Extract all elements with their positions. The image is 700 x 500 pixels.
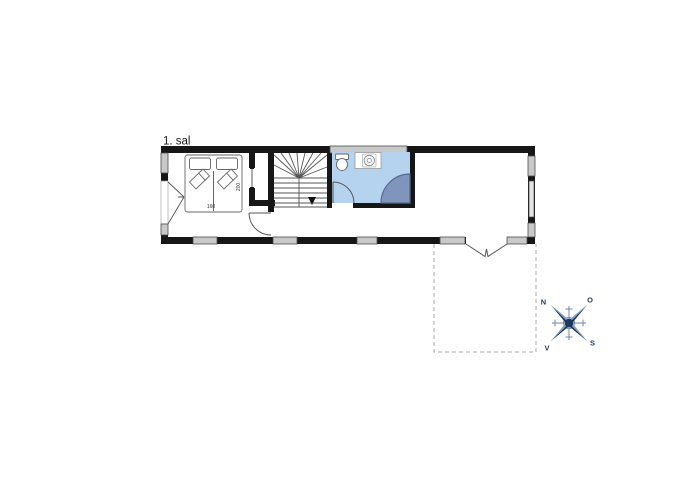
toilet xyxy=(336,154,349,171)
compass-label-west: V xyxy=(544,344,549,353)
bed-pillow-left xyxy=(190,158,211,170)
sink-drain xyxy=(367,158,371,162)
window-right-mid xyxy=(529,181,534,217)
french-doors xyxy=(466,244,507,257)
window-bottom-2 xyxy=(273,237,297,244)
bedroom-door-swing xyxy=(249,213,271,235)
window-bottom-3 xyxy=(357,237,377,244)
bed-pillow-right xyxy=(217,158,238,170)
bathroom-wall-left xyxy=(327,152,332,208)
window-right-2 xyxy=(528,223,535,237)
compass-center xyxy=(565,319,574,328)
window-top-bathroom xyxy=(330,146,407,153)
floor-label: 1. sal xyxy=(163,136,191,148)
bed-width-dimension: 160 xyxy=(207,204,216,210)
bed-length-dimension: 200 xyxy=(236,183,242,192)
window-left-opening xyxy=(161,181,168,224)
window-bottom-5 xyxy=(507,237,527,244)
door-jamb-bottom xyxy=(250,187,254,190)
compass-label-east: O xyxy=(587,296,593,305)
window-left-2 xyxy=(161,224,168,235)
compass-label-south: S xyxy=(590,339,595,348)
stair-down-arrow-icon xyxy=(308,197,316,205)
toilet-bowl xyxy=(337,159,348,171)
bedroom-partition-upper xyxy=(249,153,255,168)
stair-winders xyxy=(274,153,327,178)
bedroom-door xyxy=(249,213,271,235)
bathroom-wall-right xyxy=(410,152,415,208)
stair-wall xyxy=(268,153,274,212)
floor-plan-canvas: 1. sal xyxy=(0,0,700,500)
bathroom xyxy=(332,152,410,203)
door-jamb-top xyxy=(250,167,254,170)
window-bottom-1 xyxy=(193,237,217,244)
window-left-1 xyxy=(161,153,168,173)
compass-label-north: N xyxy=(541,298,546,307)
terrace-outline xyxy=(434,244,536,352)
window-bottom-4 xyxy=(440,237,465,244)
bedroom-sliding-door xyxy=(250,167,254,190)
double-bed: 160 200 xyxy=(185,155,242,212)
stair-treads xyxy=(274,183,327,203)
sink xyxy=(355,153,381,169)
window-right-1 xyxy=(528,156,535,176)
staircase xyxy=(274,153,327,207)
floor-plan: 1. sal xyxy=(0,0,700,500)
casement-window-swing xyxy=(168,182,184,224)
bathroom-wall-bottom xyxy=(353,203,415,208)
compass-rose-icon: N O S V xyxy=(541,296,595,353)
